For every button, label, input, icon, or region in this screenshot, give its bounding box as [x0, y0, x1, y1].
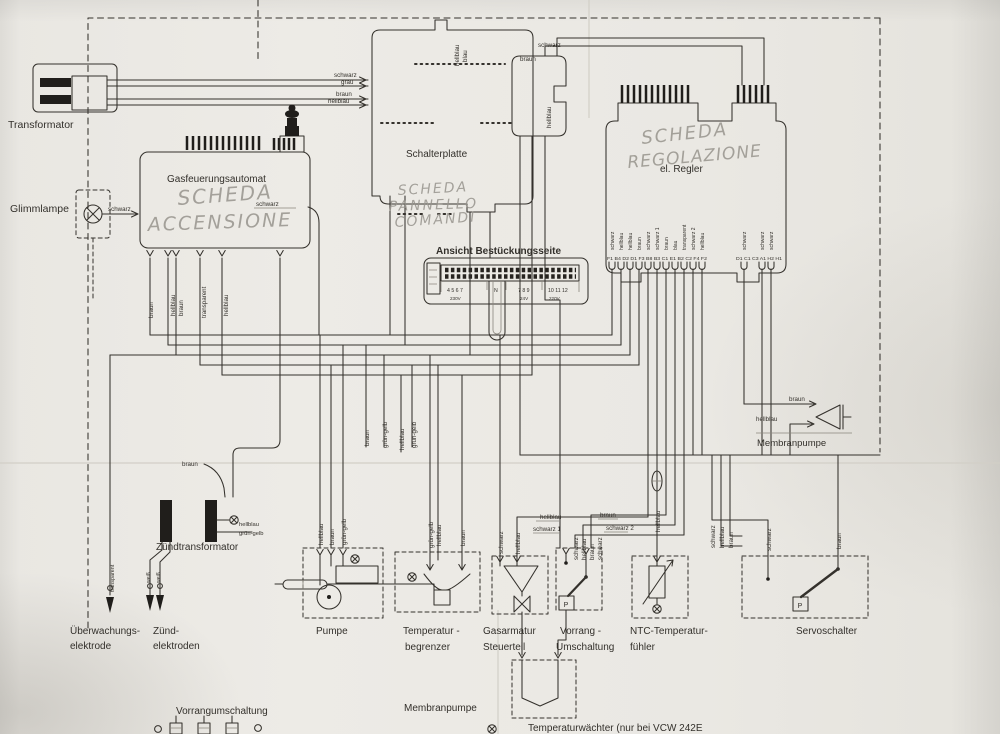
ntc-label-line2: fühler: [630, 642, 656, 653]
wire-label-braun-erdung-1: braun: [364, 430, 371, 446]
wire-label-braun-pumpe: braun: [329, 529, 336, 545]
pumpe-label: Pumpe: [316, 626, 348, 637]
regler-pin-label-11: hellblau: [700, 233, 706, 250]
servoschalter-box: [742, 556, 868, 618]
wire-label-braun-membranpumpe: braun: [789, 396, 805, 403]
wire-label-hellblau-gasautomat-pin2: hellblau: [170, 294, 177, 316]
wire-label-schwarz-gasarmatur-v: schwarz: [498, 531, 505, 554]
temperaturwaechter-box: [488, 652, 576, 733]
el-regler-board: [606, 85, 786, 282]
wire-label-hellblau-pumpe: hellblau: [318, 523, 325, 545]
ueberwachungselektrode-label-line2: elektrode: [70, 641, 112, 652]
wire-label-hellblau-begrenzer: hellblau: [436, 524, 443, 546]
wire-label-braun-trafo: braun: [336, 91, 352, 98]
wire-label-braun-schalterplatte: braun: [520, 56, 536, 63]
regler-pin-label-2: hellblau: [619, 233, 625, 250]
regler-pin-label-12: schwarz: [742, 231, 748, 250]
klemmleiste-numbers-1: 4 5 6 7: [447, 288, 463, 294]
wire-label-weiss-elektrode-2: weiß: [156, 572, 162, 583]
wire-label-weiss-elektrode-1: weiß: [146, 572, 152, 583]
regler-pin-label-13: schwarz: [760, 231, 766, 250]
klemmleiste-voltage-24: 24V: [520, 296, 529, 301]
klemmleiste-numbers-3: 10 11 12: [548, 288, 568, 294]
membranpumpe-right-label: Membranpumpe: [757, 438, 826, 449]
regler-pin-label-9: transparent: [682, 224, 688, 250]
schalterplatte-label: Schalterplatte: [406, 149, 468, 160]
membranpumpe-bottom-label: Membranpumpe: [404, 703, 477, 714]
wire-label-schwarz2-vorrang: schwarz 2: [606, 525, 634, 532]
gasarmatur-label-line2: Steuerteil: [483, 642, 525, 653]
wire-label-hellblau-servo-zuleitung: hellblau: [719, 526, 726, 548]
wire-label-hellblau-vorrang-v: hellblau: [581, 538, 588, 560]
wire-label-hellblau-zuendtrafo: hellblau: [239, 522, 259, 528]
zuendtransformator-symbol: [150, 464, 252, 595]
handwriting-scheda-accensione-2: ACCENSIONE: [145, 209, 292, 236]
wire-label-schwarz-glimmlampe: schwarz: [108, 206, 131, 213]
regler-terminal-row-left: F1 B4 D2 D1 F3 B8 B3 C1 E1 B2 C2 F4 F2: [607, 256, 708, 261]
wire-label-hellblau-schalterplatte-top: hellblau: [454, 44, 461, 66]
vorrang-label-line2: Umschaltung: [556, 642, 614, 653]
wire-label-braun-vorrang: braun: [600, 512, 616, 519]
zuendelektroden-label-line2: elektroden: [153, 641, 200, 652]
servo-p-label: P: [798, 603, 803, 610]
zuendtransformator-label: Zündtransformator: [156, 542, 239, 553]
transformator-label: Transformator: [8, 119, 74, 131]
wire-label-braun-gasautomat-pin1: braun: [148, 302, 155, 318]
klemmleiste-numbers-n: N: [494, 288, 498, 294]
wire-label-gruengelb-zuendtrafo: grün-gelb: [239, 531, 264, 537]
wire-label-grau-trafo: grau: [341, 79, 354, 86]
wire-label-schwarz-servo: schwarz: [766, 528, 773, 551]
regler-pin-label-4: braun: [637, 237, 643, 250]
regler-pin-label-1: schwarz: [610, 231, 616, 250]
wire-label-hellblau-trafo: hellblau: [328, 98, 350, 105]
wire-label-gruengelb-erdung-2: grün-gelb: [411, 421, 418, 448]
wire-label-hellblau-connector: hellblau: [546, 106, 553, 128]
temperaturbegrenzer-label-line2: begrenzer: [405, 642, 451, 653]
wire-label-braun-zuendtrafo: braun: [182, 461, 198, 468]
klemmleiste-voltage-230: 230V: [450, 296, 462, 301]
zuendelektrode-tip-2: [156, 595, 164, 611]
ntc-fuehler-box: [632, 471, 688, 618]
vorrangumschaltung-bottom-label: Vorrangumschaltung: [176, 706, 268, 717]
regler-pin-label-10: schwarz 2: [691, 227, 697, 250]
temperaturbegrenzer-label-line1: Temperatur -: [403, 626, 460, 637]
wire-label-schwarz-trafo: schwarz: [334, 72, 357, 79]
ueberwachungselektrode-label-line1: Überwachungs-: [70, 625, 140, 637]
wire-label-schwarz-schalterplatte: schwarz: [538, 42, 561, 49]
ntc-label-line1: NTC-Temperatur-: [630, 626, 708, 637]
wire-label-hellblau-ntc: hellblau: [655, 510, 662, 532]
zuendelektrode-tip-1: [146, 595, 154, 611]
wire-label-gruengelb-begrenzer: grün-gelb: [428, 521, 435, 548]
wire-label-schwarz-vorrang-v1: schwarz: [573, 537, 580, 560]
wire-label-schwarz-servo-zuleitung: schwarz: [710, 525, 717, 548]
regler-pin-label-8: blau: [673, 240, 679, 250]
wire-label-blau-schalterplatte-top: blau: [462, 50, 469, 62]
wire-label-gruengelb-erdung-1: grün-gelb: [382, 421, 389, 448]
wire-label-braun-gasautomat-pin3: braun: [178, 300, 185, 316]
vorrang-label-line1: Vorrang -: [560, 626, 601, 637]
glimmlampe-label: Glimmlampe: [10, 203, 69, 215]
wire-label-hellblau-mitte: hellblau: [399, 428, 406, 450]
regler-pin-label-3: hellblau: [628, 233, 634, 250]
regler-pin-label-6: schwarz 1: [655, 227, 661, 250]
regler-pin-label-14: schwarz: [769, 231, 775, 250]
wire-label-transparent-elektrode: transparent: [110, 564, 116, 592]
scanned-wiring-diagram: TransformatorGlimmlampeGasfeuerungsautom…: [0, 0, 1000, 734]
bestueckungsseite-label: Ansicht Bestückungsseite: [436, 246, 561, 257]
klemmleiste-bestueckungsseite: [424, 258, 588, 340]
vorrang-p-label: P: [564, 602, 569, 609]
ueberwachungselektrode-tip: [106, 597, 114, 613]
pumpe-box: [303, 548, 383, 618]
wire-label-braun-begrenzer: braun: [460, 530, 467, 546]
zuendelektroden-label-line1: Zünd-: [153, 626, 179, 637]
regler-pin-label-7: braun: [664, 237, 670, 250]
wire-label-transparent-gasautomat-pin4: transparent: [201, 286, 208, 318]
wire-label-hellblau-membranpumpe: hellblau: [756, 416, 778, 423]
wire-label-schwarz1-gasarmatur: schwarz 1: [533, 526, 561, 533]
klemmleiste-numbers-2: 7 8 9: [518, 288, 530, 294]
glimmlampe-symbol: [76, 190, 138, 238]
schematic-canvas: TransformatorGlimmlampeGasfeuerungsautom…: [0, 0, 1000, 734]
transformator-symbol: [33, 64, 368, 112]
wire-label-gruengelb-pumpe: grün-gelb: [341, 518, 348, 545]
gasarmatur-label-line1: Gasarmatur: [483, 626, 536, 637]
wire-label-hellblau-gasautomat-pin5: hellblau: [223, 294, 230, 316]
regler-pin-label-5: schwarz: [646, 231, 652, 250]
wire-label-braun-vorrang-v: braun: [589, 544, 596, 560]
wire-label-hellblau-gasarmatur-v: hellblau: [515, 532, 522, 554]
klemmleiste-voltage-220: 220V: [549, 296, 561, 301]
wire-label-schwarz-vorrang-v2: schwarz: [597, 537, 604, 560]
wire-label-hellblau-gasarmatur: hellblau: [540, 514, 562, 521]
regler-terminal-row-right: D1 C1 C3 A1 H2 H1: [736, 256, 782, 261]
gasarmatur-box: [492, 556, 548, 652]
wire-label-braun-servo: braun: [836, 533, 843, 549]
vorrangumschaltung-plugs: [155, 716, 262, 734]
wire-label-braun-servo-zuleitung: braun: [728, 532, 735, 548]
temperaturwaechter-label: Temperaturwächter (nur bei VCW 242E: [528, 723, 703, 734]
servoschalter-label: Servoschalter: [796, 626, 858, 637]
